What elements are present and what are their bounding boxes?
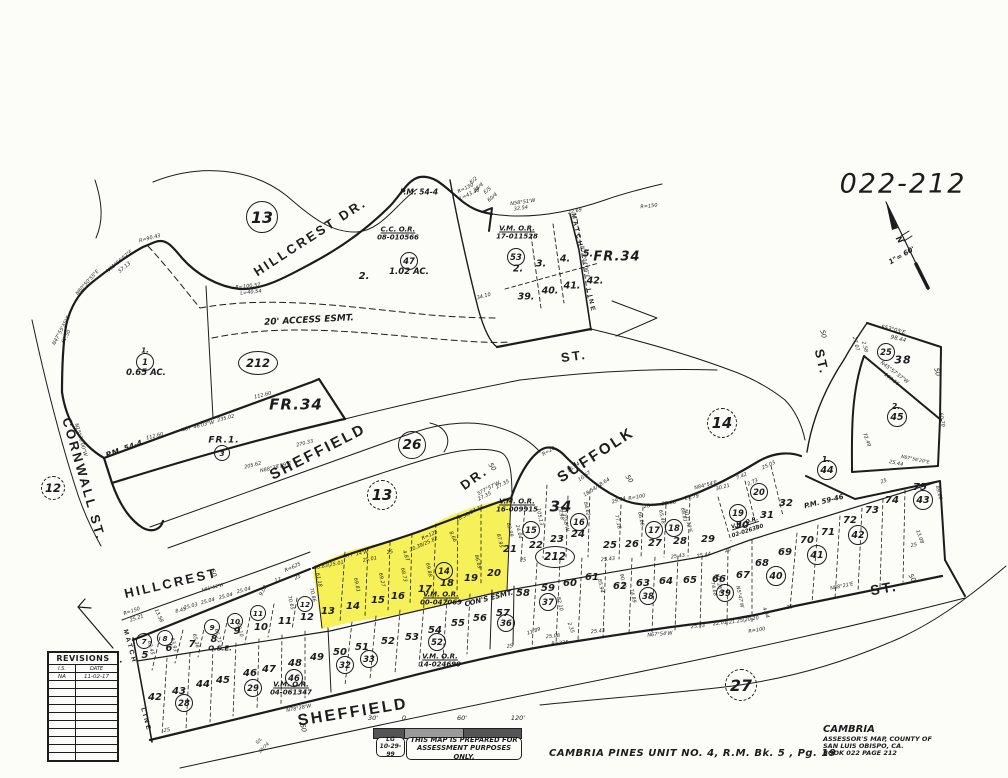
- revision-empty-row: [49, 721, 118, 729]
- road-arrow: [78, 599, 113, 648]
- map-label: 38: [894, 355, 911, 366]
- map-label: 49: [310, 653, 324, 663]
- map-label: 45: [216, 676, 230, 686]
- parcel-marker: 40: [766, 566, 786, 586]
- map-label: 48: [288, 659, 302, 669]
- parcel-marker: 10: [227, 613, 243, 629]
- map-label: 60: [563, 579, 577, 589]
- parcel-marker: 38: [639, 587, 657, 605]
- map-label: FR.34: [269, 398, 323, 413]
- map-label: 14: [346, 602, 360, 612]
- map-label: 74: [885, 496, 899, 506]
- map-label: ST.: [560, 348, 588, 365]
- scale-label: 0: [402, 714, 406, 722]
- map-label: 16: [391, 592, 405, 602]
- disclaimer-line1: THIS MAP IS PREPARED FOR: [410, 736, 517, 744]
- map-label: 56: [473, 614, 487, 624]
- map-label: V.M. O.R.: [499, 226, 535, 233]
- parcel-marker: 26: [398, 431, 426, 459]
- parcel-line: [497, 329, 591, 347]
- revisions-title: REVISIONS: [49, 653, 118, 665]
- road-edge: [153, 171, 417, 232]
- revisions-col-is: I.S.: [49, 665, 76, 673]
- north-arrow: [916, 264, 928, 288]
- parcel-marker: 43: [913, 490, 933, 510]
- map-label: 70: [800, 536, 814, 546]
- parcel-marker: 36: [497, 614, 515, 632]
- parcel-marker: 3: [214, 445, 230, 461]
- map-label: 25: [163, 728, 170, 734]
- parcel-marker: 41: [807, 545, 827, 565]
- map-label: 20: [487, 569, 501, 579]
- map-label: 3.: [536, 259, 546, 269]
- parcel-marker: 28: [175, 694, 193, 712]
- revision-empty-row: [49, 745, 118, 753]
- map-label: 022-212: [840, 171, 967, 198]
- map-label: C.C. O.R.: [381, 227, 416, 234]
- map-label: 47: [262, 665, 276, 675]
- parcel-marker: 25: [877, 343, 895, 361]
- disclaimer-stamp: THIS MAP IS PREPARED FOR ASSESSMENT PURP…: [406, 737, 522, 760]
- map-label: 24: [571, 530, 585, 540]
- parcel-line: [450, 180, 497, 347]
- revision-date: 11-02-17: [76, 673, 118, 681]
- assessor-block: CAMBRIA ASSESSOR'S MAP, COUNTY OF SAN LU…: [823, 724, 932, 758]
- map-label: 68: [755, 559, 769, 569]
- north-arrow-head: [886, 202, 898, 230]
- parcel-marker: 15: [522, 521, 540, 539]
- map-label: 10: [254, 623, 268, 633]
- parcel-marker: 53: [507, 248, 525, 266]
- parcel-marker: 44: [817, 460, 837, 480]
- revision-empty-row: [49, 705, 118, 713]
- revision-empty-row: [49, 697, 118, 705]
- parcel-marker: 42: [848, 525, 868, 545]
- parcel-marker: 33: [360, 650, 378, 668]
- map-label: 23: [550, 535, 564, 545]
- map-label: 64: [659, 577, 673, 587]
- parcel-marker: 1: [136, 353, 154, 371]
- map-label: 50: [933, 367, 941, 377]
- parcel-marker: 16: [570, 513, 588, 531]
- disclaimer-line2: ASSESSMENT PURPOSES ONLY.: [407, 744, 521, 761]
- parcel-marker: 20: [750, 483, 768, 501]
- parcel-marker: 11: [250, 605, 266, 621]
- road-edge: [591, 329, 805, 440]
- map-label: 55: [451, 619, 465, 629]
- map-label: 14-024690: [419, 662, 461, 669]
- surveyor-date: 10-29-99: [377, 743, 404, 758]
- revision-initials: NA: [49, 673, 76, 681]
- map-label: 44: [196, 680, 210, 690]
- map-label: 41.: [564, 281, 581, 291]
- scale-label: 30': [368, 714, 378, 722]
- map-label: 4.: [560, 254, 570, 264]
- parcel-marker: 29: [244, 679, 262, 697]
- assessor-map-page: 022-212N1"= 60'HILLCREST DR.CORNWALL ST.…: [0, 0, 1008, 778]
- map-label: 65: [683, 576, 697, 586]
- parcel-marker: 8: [157, 630, 173, 646]
- revisions-col-date: DATE: [76, 665, 118, 673]
- parcel-marker: 46: [285, 669, 303, 687]
- surveyor-stamp: LG 10-29-99: [376, 737, 405, 757]
- map-label: 42: [148, 693, 162, 703]
- parcel-line: [482, 208, 492, 231]
- map-label: 58: [516, 589, 530, 599]
- map-label: 27: [648, 539, 662, 549]
- revision-empty-row: [49, 681, 118, 689]
- map-label: 32: [779, 499, 793, 509]
- parcel-marker: 13: [246, 201, 278, 233]
- map-label: 69: [778, 548, 792, 558]
- parcel-marker: 39: [716, 584, 734, 602]
- parcel-marker: 17: [645, 521, 663, 539]
- map-label: 28: [643, 504, 650, 510]
- map-label: 40.: [542, 286, 559, 296]
- map-label: 53: [405, 633, 419, 643]
- parcel-marker: 14: [435, 562, 453, 580]
- map-label: 30: [735, 521, 749, 531]
- map-label: V.M. O.R.: [499, 499, 535, 506]
- assessor-line: BOOK 022 PAGE 212: [823, 750, 932, 757]
- map-label: FR.34: [593, 251, 640, 264]
- revision-empty-row: [49, 737, 118, 745]
- map-label: P.M. 54-4: [400, 188, 438, 196]
- parcel-marker: 13: [367, 480, 397, 510]
- parcel-marker: 37: [539, 593, 557, 611]
- map-linework: [0, 0, 1008, 778]
- parcel-marker: 19: [729, 504, 747, 522]
- parcel-marker: 14: [707, 408, 737, 438]
- parcel-marker: 12: [41, 476, 65, 500]
- map-label: 60.70: [937, 413, 944, 428]
- revision-empty-row: [49, 729, 118, 737]
- map-label: 28: [673, 537, 687, 547]
- map-label: 21: [503, 545, 517, 555]
- map-label: 25: [520, 559, 526, 564]
- scale-label: 120': [511, 714, 525, 722]
- map-label: FR.1.: [208, 437, 239, 446]
- map-label: 42.: [587, 276, 604, 286]
- map-label: 2.: [359, 272, 370, 282]
- surveyor-initials: LG: [386, 736, 395, 744]
- map-label: 17-011528: [496, 234, 538, 241]
- parcel-marker: 212: [238, 351, 278, 375]
- map-label: 13: [321, 607, 335, 617]
- road-edge: [95, 180, 101, 238]
- revision-empty-row: [49, 753, 118, 761]
- parcel-marker: 18: [665, 519, 683, 537]
- map-label: 5: [142, 651, 149, 661]
- map-label: 08-010566: [377, 235, 419, 242]
- map-label: 46: [243, 669, 257, 679]
- assessor-line: CAMBRIA: [823, 724, 932, 736]
- map-label: 71: [821, 528, 835, 538]
- map-label: 11: [278, 617, 292, 627]
- parcel-marker: 47: [400, 252, 418, 270]
- parcel-marker: 32: [336, 656, 354, 674]
- map-label: O.S.E.: [208, 646, 232, 653]
- parcel-marker: 9: [204, 619, 220, 635]
- map-label: 31: [760, 511, 774, 521]
- parcel-marker: 52: [428, 633, 446, 651]
- map-label: 29: [701, 535, 715, 545]
- revision-empty-row: [49, 689, 118, 697]
- map-label: 12: [300, 613, 314, 623]
- revision-empty-row: [49, 713, 118, 721]
- map-label: 39.: [518, 292, 535, 302]
- map-label: 50: [819, 329, 827, 339]
- map-label: 73: [865, 506, 879, 516]
- map-label: 25: [603, 541, 617, 551]
- scale-label: 60': [457, 714, 467, 722]
- map-label: 04-061347: [270, 690, 312, 697]
- map-label: 52: [381, 637, 395, 647]
- parcel-marker: 212: [535, 546, 575, 568]
- road-arrow: [612, 301, 657, 336]
- parcel-marker: 7: [136, 633, 152, 649]
- map-label: 50: [299, 723, 307, 733]
- map-label: 25: [507, 644, 514, 650]
- road-edge: [345, 369, 717, 419]
- map-credit: CAMBRIA PINES UNIT NO. 4, R.M. Bk. 5 , P…: [549, 748, 836, 759]
- map-label: 18: [440, 579, 454, 589]
- parcel-marker: 12: [297, 596, 313, 612]
- map-label: 00-047069: [420, 600, 462, 607]
- parcel-marker: 27: [725, 669, 757, 701]
- revisions-table: REVISIONS I.S. DATE NA 11-02-17: [47, 651, 119, 762]
- map-label: 19: [464, 574, 478, 584]
- map-label: 15: [371, 596, 385, 606]
- access-esmt: [148, 246, 508, 342]
- map-label: 17: [418, 585, 432, 595]
- map-label: 16-009915: [496, 507, 538, 514]
- map-label: 26: [625, 540, 639, 550]
- map-label: 67: [736, 571, 750, 581]
- map-label: V.M. O.R.: [422, 654, 458, 661]
- parcel-marker: 45: [887, 407, 907, 427]
